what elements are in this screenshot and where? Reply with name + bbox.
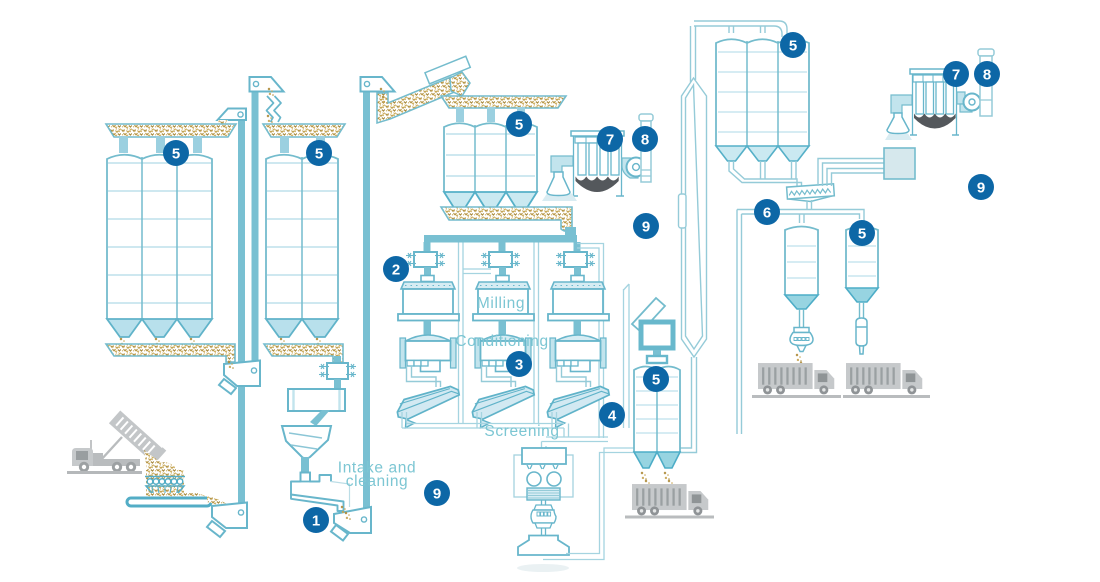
svg-text:8: 8 [641,132,649,149]
svg-text:5: 5 [172,146,180,163]
svg-text:9: 9 [977,180,985,197]
svg-text:1: 1 [312,513,320,530]
svg-text:6: 6 [763,205,771,222]
svg-text:5: 5 [652,372,660,389]
svg-text:9: 9 [433,486,441,503]
svg-text:2: 2 [392,262,400,279]
svg-text:cleaning: cleaning [346,473,409,490]
svg-text:7: 7 [606,132,614,149]
svg-text:Screening: Screening [484,423,559,440]
svg-text:3: 3 [515,357,523,374]
svg-text:5: 5 [789,38,797,55]
svg-text:8: 8 [983,67,991,84]
svg-text:Milling: Milling [477,295,525,312]
svg-text:5: 5 [315,146,323,163]
svg-text:5: 5 [858,226,866,243]
svg-text:4: 4 [608,408,617,425]
svg-text:9: 9 [642,219,650,236]
svg-text:5: 5 [515,117,523,134]
svg-text:Conditioning: Conditioning [455,333,548,350]
svg-text:7: 7 [952,67,960,84]
